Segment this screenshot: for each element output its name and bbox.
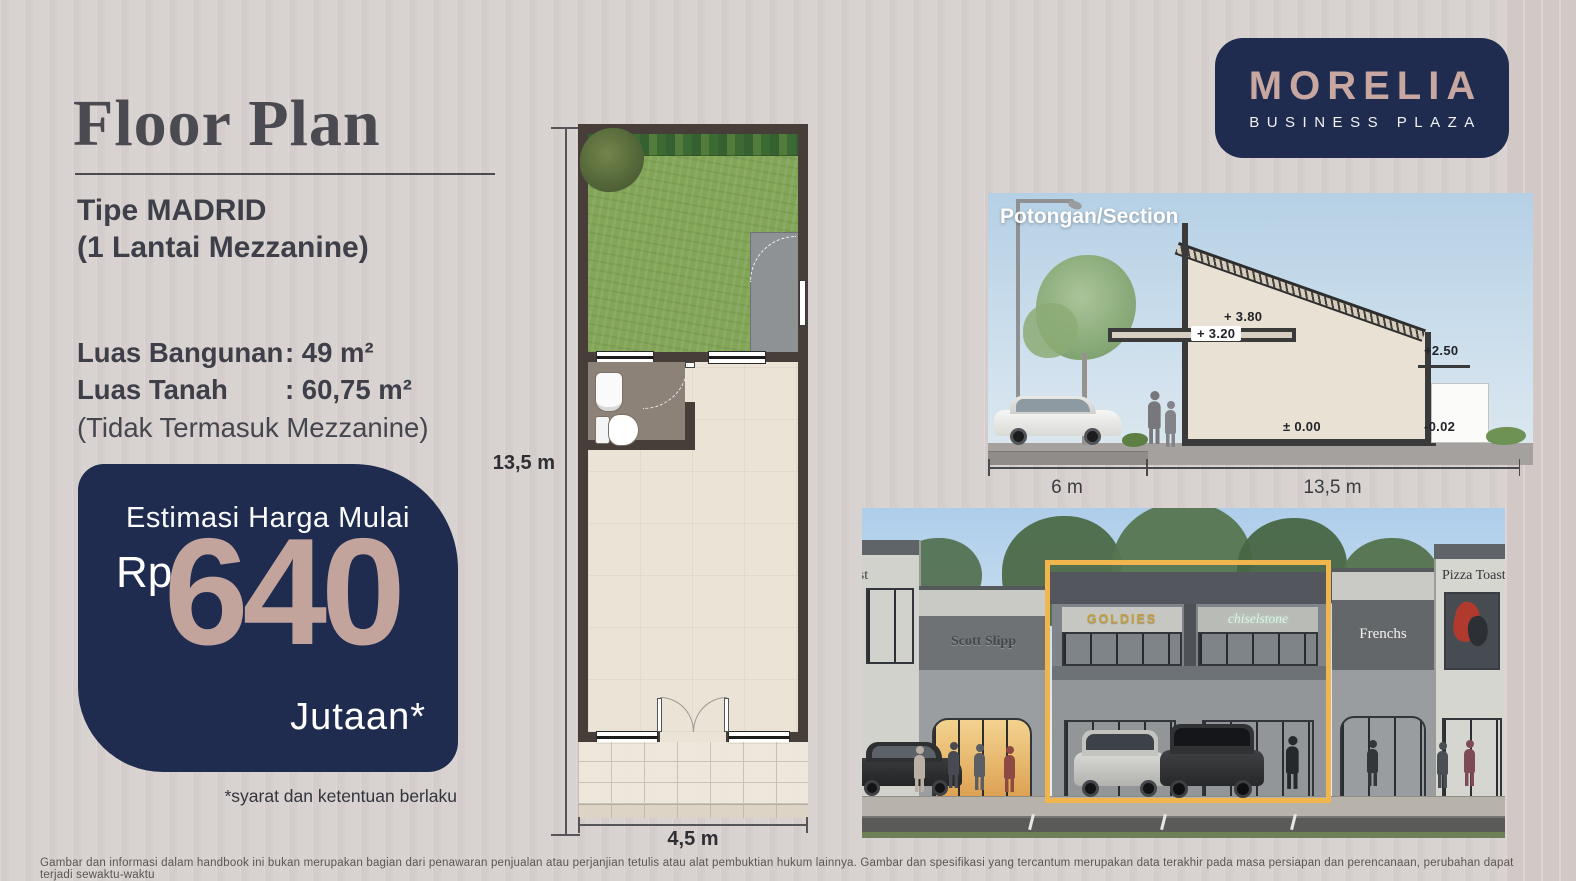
person-figure bbox=[1437, 742, 1448, 788]
handbook-page: Floor Plan Tipe MADRID (1 Lantai Mezzani… bbox=[0, 0, 1576, 881]
sink-icon bbox=[595, 372, 623, 412]
shop-sign-toast-partial: Toast bbox=[862, 568, 868, 584]
disclaimer-text: Gambar dan informasi dalam handbook ini … bbox=[40, 857, 1520, 881]
spec-label: Luas Bangunan bbox=[77, 337, 285, 369]
brand-name: MORELIA bbox=[1249, 66, 1482, 106]
grass-strip bbox=[862, 832, 1505, 838]
unit-type-sub: (1 Lantai Mezzanine) bbox=[77, 231, 369, 265]
door-leaf bbox=[657, 698, 662, 732]
car-sedan-dark bbox=[862, 740, 962, 796]
facade-render: Toast Scott Slipp GOLDIES chiselstone Fr… bbox=[862, 508, 1505, 838]
shop-sign-pizza: Pizza Toast bbox=[1442, 568, 1505, 584]
poster-art bbox=[1466, 614, 1491, 647]
spec-value: : 49 m² bbox=[285, 337, 374, 369]
shop-tower-cap bbox=[1434, 544, 1505, 559]
shop-sign-frenchs: Frenchs bbox=[1332, 626, 1434, 643]
person-figure bbox=[1004, 746, 1015, 792]
person-figure bbox=[1367, 740, 1378, 786]
spec-label: Luas Tanah bbox=[77, 374, 285, 406]
spec-row: Luas Tanah : 60,75 m² bbox=[77, 374, 412, 406]
person-figure bbox=[1148, 391, 1161, 444]
shop-tower-cap bbox=[862, 540, 919, 555]
floor-plan bbox=[578, 124, 808, 742]
unit-type: Tipe MADRID bbox=[77, 194, 266, 228]
title-underline bbox=[75, 173, 495, 175]
unit-highlight-frame bbox=[1045, 560, 1331, 803]
level-label: + 3.20 bbox=[1191, 326, 1241, 341]
entrance-opening bbox=[660, 732, 726, 742]
door-swing-arc bbox=[660, 697, 694, 732]
level-label: +2.50 bbox=[1424, 343, 1458, 358]
plan-dim-tick bbox=[551, 127, 580, 129]
brand-subtitle: BUSINESS PLAZA bbox=[1249, 114, 1482, 131]
section-dim-street: 6 m bbox=[988, 477, 1146, 499]
section-dim-tick bbox=[1519, 459, 1521, 476]
section-rear-slab bbox=[1418, 365, 1470, 368]
sign-clip: Toast bbox=[862, 566, 892, 584]
plan-dim-hline bbox=[578, 824, 808, 826]
section-title: Potongan/Section bbox=[1000, 205, 1179, 229]
shop-sign-scott: Scott Slipp bbox=[919, 634, 1048, 650]
person-figure bbox=[948, 742, 959, 788]
section-panel: + 3.80 + 3.20 +2.50 ± 0.00 -0.02 Potonga… bbox=[988, 193, 1533, 465]
section-dim-tick bbox=[1146, 459, 1148, 476]
door-swing-arc bbox=[693, 697, 727, 732]
car-suv-white bbox=[994, 396, 1122, 443]
section-dim-line bbox=[988, 467, 1520, 469]
plan-dim-vline bbox=[565, 128, 567, 835]
level-label: -0.02 bbox=[1424, 419, 1455, 434]
price-terms: *syarat dan ketentuan berlaku bbox=[195, 786, 457, 807]
toilet-bowl bbox=[608, 414, 639, 446]
car-wheel bbox=[932, 780, 948, 796]
spec-row: Luas Bangunan : 49 m² bbox=[77, 337, 374, 369]
level-label: + 3.80 bbox=[1224, 309, 1262, 324]
section-street bbox=[988, 451, 1148, 465]
car-wheel bbox=[864, 780, 880, 796]
price-amount: 640 bbox=[164, 516, 400, 668]
door-leaf bbox=[724, 698, 729, 732]
brand-logo: MORELIA BUSINESS PLAZA bbox=[1215, 38, 1509, 158]
car-windows bbox=[872, 746, 936, 758]
plan-terrace bbox=[578, 742, 808, 804]
spec-value: : 60,75 m² bbox=[285, 374, 412, 406]
section-annex bbox=[1431, 383, 1489, 443]
car-wheel bbox=[1084, 428, 1101, 445]
upper-window bbox=[866, 588, 914, 664]
section-interior bbox=[1185, 245, 1428, 443]
spec-note: (Tidak Termasuk Mezzanine) bbox=[77, 412, 429, 444]
plan-dim-tick bbox=[551, 834, 580, 836]
window-icon bbox=[708, 351, 766, 364]
plan-height-label: 13,5 m bbox=[470, 452, 555, 475]
plan-width-label: 4,5 m bbox=[578, 828, 808, 851]
person-figure bbox=[1165, 401, 1176, 447]
storefront-arch bbox=[1340, 716, 1426, 798]
car-windows bbox=[1016, 399, 1090, 412]
page-title: Floor Plan bbox=[73, 86, 381, 162]
section-dim-tick bbox=[988, 459, 990, 476]
shop-parapet bbox=[1332, 568, 1434, 600]
price-unit: Jutaan* bbox=[290, 696, 426, 739]
poster-window bbox=[1444, 592, 1500, 670]
level-label: ± 0.00 bbox=[1283, 419, 1321, 434]
shop-parapet bbox=[919, 586, 1048, 616]
section-dim-building: 13,5 m bbox=[1146, 477, 1519, 499]
person-figure bbox=[914, 746, 925, 792]
gate-leaf bbox=[799, 280, 806, 326]
street-lamp-arm bbox=[1016, 199, 1074, 203]
person-figure bbox=[1464, 740, 1475, 786]
section-floor-slab bbox=[1182, 439, 1436, 446]
price-card: Estimasi Harga Mulai Rp 640 Jutaan* bbox=[78, 464, 458, 772]
person-figure bbox=[974, 744, 985, 790]
plan-terrace-step bbox=[578, 804, 808, 818]
car-wheel bbox=[1010, 428, 1027, 445]
